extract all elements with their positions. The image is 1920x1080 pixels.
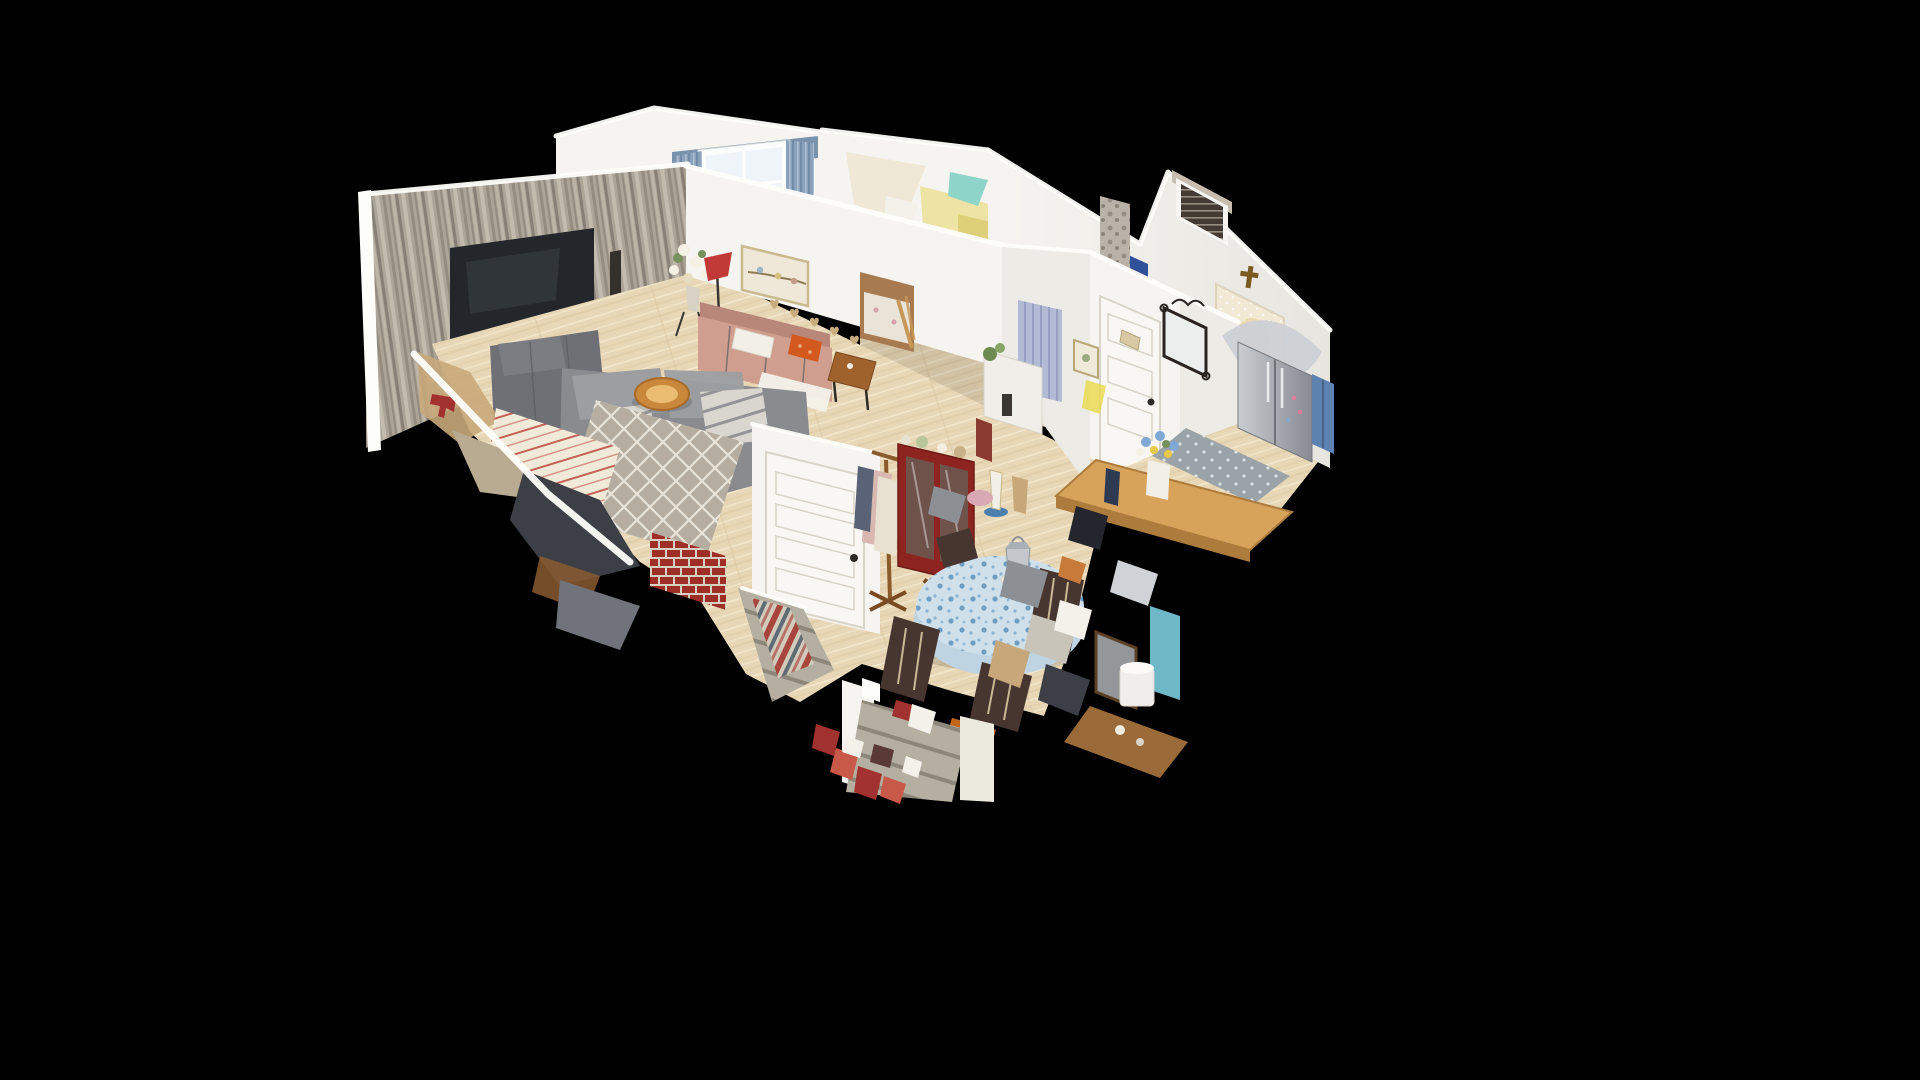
cabinet-clutter <box>916 436 928 448</box>
stair-side-wall <box>960 716 994 802</box>
white-statue <box>990 470 1002 510</box>
desk-clutter <box>1136 738 1144 746</box>
potted-greenery <box>983 347 997 361</box>
white-bin-lid <box>1120 662 1154 674</box>
door-knob <box>1148 399 1155 406</box>
fridge-magnet <box>1286 418 1290 422</box>
mesh-shard <box>1110 560 1158 606</box>
potted-greenery <box>995 343 1005 353</box>
blue-flower <box>1169 441 1179 451</box>
hanging-coat <box>874 476 900 556</box>
flower-vase <box>686 286 700 312</box>
white-flower <box>1136 448 1144 456</box>
dollhouse-3d-viewport[interactable] <box>0 0 1920 1080</box>
dark-bottle <box>1104 468 1120 506</box>
blue-flower <box>1155 431 1165 441</box>
dark-lantern <box>1002 394 1012 416</box>
red-shelf-corner <box>976 418 992 462</box>
bed-flower <box>892 320 897 325</box>
fridge-magnet <box>1292 396 1296 400</box>
yellow-flower <box>1150 446 1158 454</box>
cabinet-clutter <box>937 443 947 453</box>
cabinet-clutter <box>901 435 911 445</box>
picture-bird <box>775 273 781 279</box>
flower-vase <box>1146 460 1170 500</box>
picture-bird <box>757 267 763 273</box>
app-window <box>0 0 1920 1080</box>
cabinet-clutter <box>954 446 966 458</box>
greenery <box>1162 440 1170 448</box>
picture-bird <box>791 278 797 284</box>
blue-flower <box>1141 437 1151 447</box>
tan-figurine <box>1012 476 1028 514</box>
pillow-pattern <box>798 344 802 348</box>
vanity-desk <box>1064 706 1188 778</box>
fridge-magnet <box>1298 410 1302 414</box>
door-knob <box>850 554 858 562</box>
bed-flower <box>874 308 879 313</box>
mesh-shard <box>556 580 640 650</box>
yellow-flower <box>1164 450 1172 458</box>
tree-slice-rings <box>646 385 678 403</box>
desk-clutter <box>1115 725 1125 735</box>
art-flowers <box>1082 354 1090 362</box>
pink-stool <box>967 490 993 506</box>
pillow-pattern <box>808 350 812 354</box>
